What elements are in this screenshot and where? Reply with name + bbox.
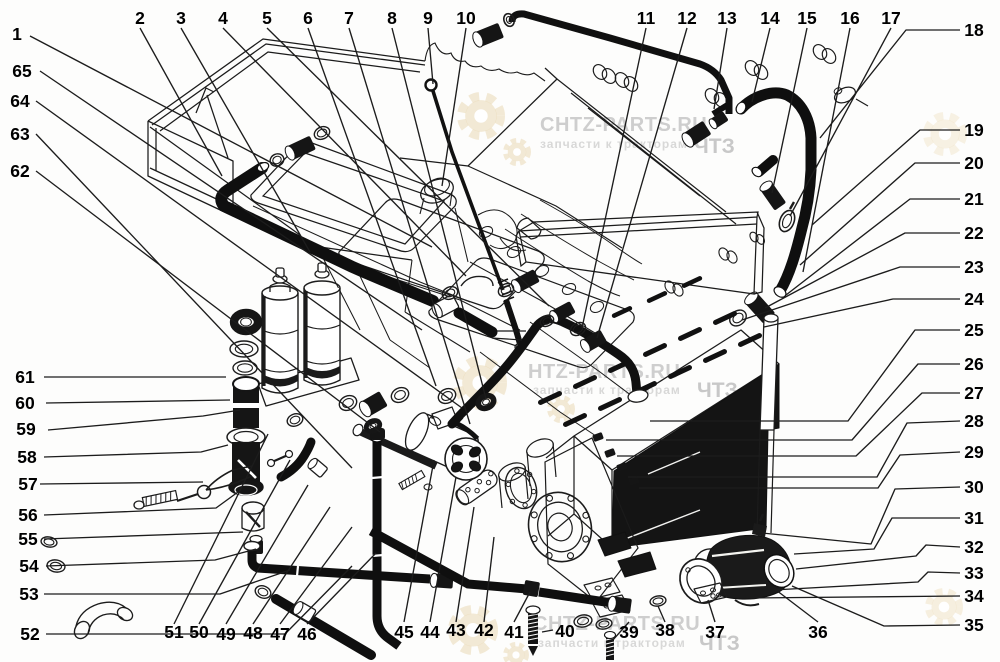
svg-text:49: 49	[216, 624, 236, 644]
svg-text:61: 61	[15, 367, 35, 387]
svg-text:13: 13	[717, 8, 737, 28]
svg-text:33: 33	[964, 563, 984, 583]
svg-text:9: 9	[423, 8, 433, 28]
svg-text:62: 62	[10, 161, 30, 181]
svg-text:36: 36	[808, 622, 828, 642]
svg-text:64: 64	[10, 91, 30, 111]
svg-text:10: 10	[456, 8, 476, 28]
svg-text:1: 1	[12, 24, 22, 44]
svg-text:17: 17	[881, 8, 900, 28]
svg-text:4: 4	[218, 8, 228, 28]
svg-text:27: 27	[964, 383, 983, 403]
svg-text:22: 22	[964, 223, 984, 243]
svg-text:14: 14	[760, 8, 780, 28]
svg-text:23: 23	[964, 257, 984, 277]
svg-text:7: 7	[344, 8, 354, 28]
svg-text:45: 45	[394, 622, 414, 642]
svg-text:53: 53	[19, 584, 39, 604]
svg-text:60: 60	[15, 393, 35, 413]
svg-text:42: 42	[474, 620, 494, 640]
svg-text:39: 39	[619, 622, 639, 642]
svg-text:59: 59	[16, 419, 36, 439]
svg-text:43: 43	[446, 620, 466, 640]
svg-text:35: 35	[964, 615, 984, 635]
svg-text:32: 32	[964, 537, 984, 557]
svg-text:HTZ-PARTS.RU: HTZ-PARTS.RU	[528, 361, 680, 383]
svg-text:6: 6	[303, 8, 313, 28]
svg-text:34: 34	[964, 586, 984, 606]
svg-text:40: 40	[555, 621, 575, 641]
svg-text:55: 55	[18, 529, 38, 549]
svg-text:3: 3	[176, 8, 186, 28]
svg-text:21: 21	[964, 189, 984, 209]
svg-text:47: 47	[270, 624, 289, 644]
svg-text:26: 26	[964, 354, 984, 374]
svg-text:18: 18	[964, 20, 984, 40]
svg-text:25: 25	[964, 320, 984, 340]
svg-text:41: 41	[504, 622, 524, 642]
svg-text:65: 65	[12, 61, 32, 81]
svg-text:24: 24	[964, 289, 984, 309]
svg-text:2: 2	[135, 8, 145, 28]
svg-text:46: 46	[297, 624, 317, 644]
svg-text:8: 8	[387, 8, 397, 28]
svg-text:20: 20	[964, 153, 984, 173]
svg-text:63: 63	[10, 124, 30, 144]
svg-text:56: 56	[18, 505, 38, 525]
svg-text:58: 58	[17, 447, 37, 467]
svg-text:50: 50	[189, 622, 209, 642]
svg-text:16: 16	[840, 8, 860, 28]
svg-text:15: 15	[797, 8, 817, 28]
svg-text:48: 48	[243, 623, 263, 643]
svg-text:11: 11	[637, 8, 656, 28]
svg-text:37: 37	[705, 622, 724, 642]
svg-text:29: 29	[964, 442, 984, 462]
svg-text:54: 54	[19, 556, 39, 576]
svg-text:12: 12	[677, 8, 697, 28]
svg-text:запчасти к тракторам: запчасти к тракторам	[540, 137, 688, 151]
svg-text:57: 57	[18, 474, 37, 494]
svg-text:28: 28	[964, 411, 984, 431]
svg-text:38: 38	[655, 620, 675, 640]
svg-text:30: 30	[964, 477, 984, 497]
svg-text:19: 19	[964, 120, 984, 140]
svg-text:51: 51	[164, 622, 184, 642]
svg-text:52: 52	[20, 624, 40, 644]
svg-text:5: 5	[262, 8, 272, 28]
svg-text:44: 44	[420, 622, 440, 642]
svg-text:31: 31	[964, 508, 984, 528]
